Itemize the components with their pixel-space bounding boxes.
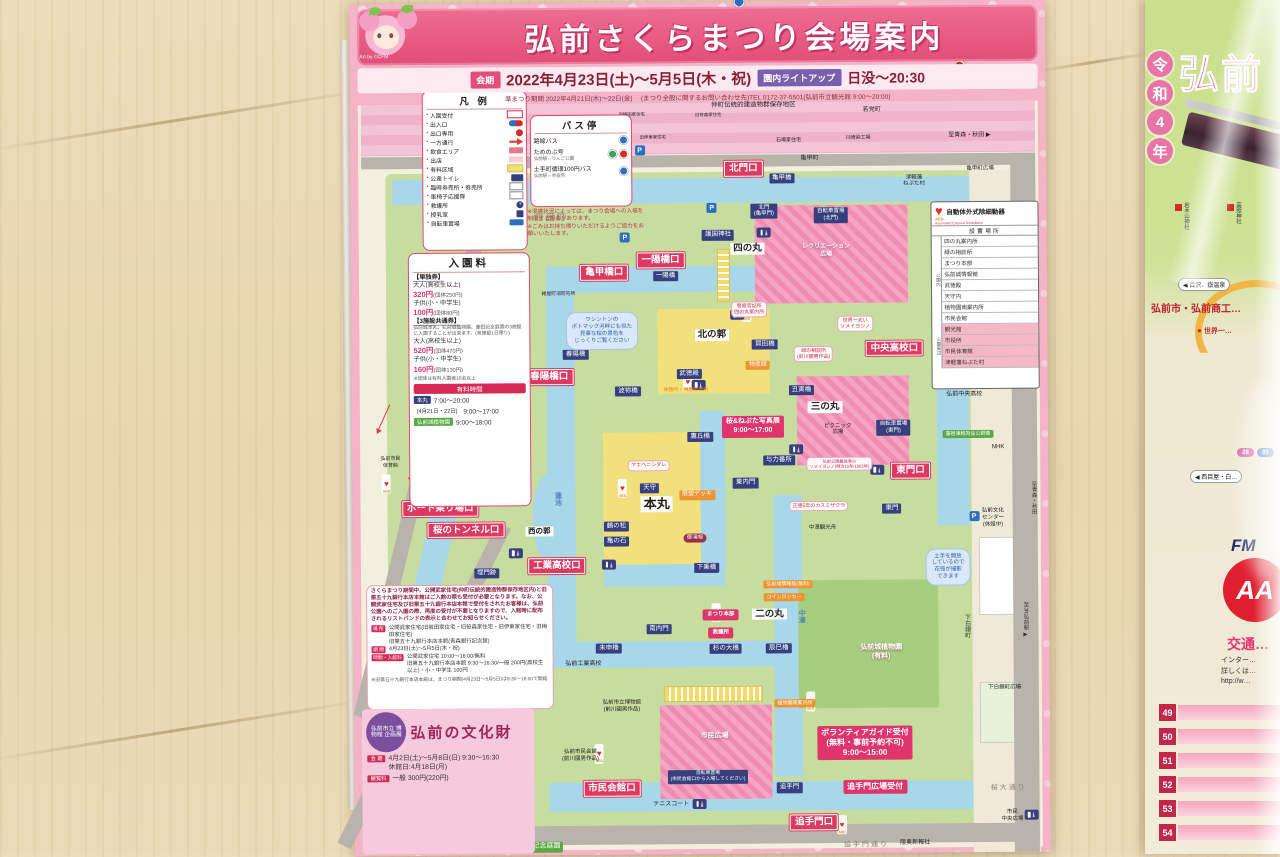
map-label: 西の郭 — [525, 527, 554, 537]
food-icon — [509, 148, 523, 154]
map-label: 紺屋町消防屯所 — [542, 292, 576, 298]
bicycle-icon — [510, 220, 524, 226]
paid-area-kitanokuruwa — [657, 308, 769, 394]
map-label: ボランティアガイド受付 (無料・事前予約不可) 9:00〜15:00 — [817, 726, 913, 761]
route-number-icon: 85 — [1257, 448, 1274, 457]
aed-icon: ♥AED — [382, 474, 392, 494]
toilet-icon — [602, 560, 616, 570]
map-label: 中濠観光舟 — [809, 525, 837, 532]
map-label: 旧笹森家住宅 — [695, 112, 721, 118]
map-label: 世界一太い ソメイヨシノ — [837, 315, 873, 332]
map-label: 追手門 — [777, 783, 803, 793]
timetable-row: 54 — [1159, 822, 1280, 843]
red-circle-logo: AA — [1223, 558, 1280, 622]
parking-icon: P — [969, 511, 979, 521]
timetable-row: 52 — [1159, 774, 1280, 795]
map-label: 桜&ねぷた写真展 9:00〜17:00 — [722, 416, 784, 438]
aed-location: 市民会館 — [943, 313, 1039, 325]
inout-icon — [509, 121, 523, 127]
map-label: 賀田橋 — [752, 339, 778, 349]
era-character: 年 — [1147, 138, 1173, 164]
legend-item: ▪車椅子応援隊 — [424, 191, 527, 201]
legend-item: ▪臨時券売所・券売所 — [424, 182, 527, 192]
map-label: まつり本部 — [703, 610, 739, 621]
info-lines: インター…詳しくは…http://w… — [1221, 656, 1256, 688]
aed-location: 武徳殿 — [942, 280, 1038, 292]
legend-item: ▪有料区域 — [424, 164, 527, 174]
fare-line: 大人(高校生以上)320円(団体250円) — [413, 281, 525, 300]
road — [494, 823, 1040, 846]
traffic-heading: 交通… — [1227, 634, 1269, 654]
shrine-label: 岩木山神社 — [1175, 202, 1190, 230]
aed-location: まつり本部 — [942, 258, 1038, 270]
map-label: 至青森・秋田 — [1030, 482, 1037, 515]
map-label: 自転車置場 (東門) — [877, 420, 911, 436]
map-label: 追手門広場受付 — [843, 780, 907, 794]
map-label: 追手門通り — [844, 841, 889, 850]
map-label: 藩祖津軽為信公銅像 — [942, 429, 993, 438]
map-label: 三の丸 — [808, 401, 843, 413]
stall-row — [717, 249, 730, 302]
map-label: 埋門跡 — [474, 568, 500, 578]
art-credit: Art by ©CFM — [359, 54, 388, 60]
ticket-icon — [510, 183, 524, 191]
direction-badge: ◀ 百沢、嶽温泉 — [1178, 278, 1230, 291]
map-label: 亀甲橋口 — [580, 265, 628, 281]
map-label: 追手門口 — [790, 814, 838, 830]
paid-hours-row: 本丸7:00〜20:00 — [410, 394, 530, 405]
map-label: 仲町伝統的建造物群保存地区 — [711, 101, 796, 110]
map-label: 下白銀町広場 — [988, 685, 1021, 692]
desk-board-seam — [1035, 51, 1154, 73]
admission-fee-box: 入園料 【単独券】 大人(高校生以上)320円(団体250円)子供(小・中学生)… — [408, 252, 531, 507]
timetable-rows: 495051525354 — [1159, 702, 1280, 846]
shrine-label: 高照神社 — [1227, 202, 1242, 224]
bus-stop-marker-icon — [619, 135, 628, 144]
aed-icon: ♥AED — [618, 478, 628, 498]
map-label: 津軽藩 ねぷた村 — [903, 174, 925, 188]
map-label: 亀甲町 — [800, 155, 818, 163]
map-label: 一陽橋口 — [636, 252, 684, 268]
map-label: 川崎染工場 — [846, 135, 871, 141]
aid-icon: + — [517, 201, 524, 208]
map-label: 中濠 — [796, 609, 805, 623]
paid-icon — [508, 165, 524, 173]
map-label: 天守 — [640, 483, 659, 493]
aed-location: 市役所 — [943, 335, 1039, 347]
aed-location: 緑の相談所 — [942, 247, 1038, 259]
group-note: ※団体は有料入園者10名以上 — [410, 374, 530, 382]
map-label: 市民広場 — [701, 733, 729, 742]
bus-stop-box: バス停 路線バスためのぶ号弘前駅⇔りんご公園土手町循環100円バス弘前駅⇔市役所 — [529, 114, 632, 207]
era-character: 令 — [1147, 51, 1173, 77]
single-ticket-heading: 【単独券】 — [413, 274, 444, 282]
map-label: 東門 — [882, 503, 901, 513]
map-label: 亀甲町広場 — [966, 165, 994, 172]
map-label: 至JR弘前駅 ▶ — [1021, 602, 1028, 638]
map-label: 四の丸 — [730, 243, 765, 255]
aed-location: 市民体育館 — [943, 346, 1039, 358]
bus-stop-marker-icon — [619, 166, 628, 175]
fare-line: 子供(小・中学生)100円(団体80円) — [413, 299, 525, 318]
notice-paragraph: さくらまつり期間中、公開武家住宅(仲町伝統的建造物群保存地区内)と旧第五十九銀行… — [367, 585, 552, 624]
map-label: 自転車置場 (北門) — [814, 207, 848, 223]
publisher-text: 弘前市・弘前商工… — [1151, 300, 1280, 315]
map-label: 休憩所・物産販売所 — [663, 386, 708, 393]
aed-location: 天守内 — [943, 291, 1039, 303]
map-label: 亀甲橋 — [769, 173, 795, 183]
bus-box-title: バス停 — [534, 117, 626, 134]
map-label: 下乗橋 — [694, 563, 720, 573]
map-label: 鶴の松 — [604, 521, 630, 531]
aed-location: 観光館 — [943, 324, 1039, 336]
map-label: 弘前公園最長寿の ソメイヨシノ(明治15年/1882年) — [806, 456, 872, 471]
map-label: 土手を開放 しているので 花筏が撮影 できます — [926, 548, 971, 586]
info-row: 観覧料一般 300円(220円) — [363, 774, 534, 784]
nursing-icon — [517, 210, 524, 217]
lightup-chip: 園内ライトアップ — [757, 69, 841, 87]
map-label: 弘前市立博物館 (前川國男作品) — [603, 699, 642, 713]
map-label: 辰巳櫓 — [766, 643, 792, 653]
map-label: 本丸 — [641, 496, 673, 512]
map-label: 護国神社 — [702, 230, 734, 240]
aed-around-list: 公園周辺 観光館市役所市民体育館津軽藩ねぷた村 — [943, 324, 1039, 369]
map-label: 丑寅櫓 — [789, 385, 815, 395]
timetable-row: 49 — [1159, 702, 1280, 723]
map-label: 弘前中央高校 — [946, 392, 982, 400]
map-label: 植物園南案内所 — [775, 699, 816, 708]
map-label: 弘前市民会館 (前川國男作品) — [562, 749, 599, 763]
page-title: 弘前さくらまつり会場案内 — [431, 10, 1037, 59]
timetable-row: 53 — [1159, 798, 1280, 819]
legend-item: ▪自転車置場 — [424, 218, 527, 228]
desk-board-seam — [0, 697, 375, 763]
timetable-row: 51 — [1159, 750, 1280, 771]
reiwa4-band: 令和4年 — [1147, 48, 1177, 167]
reception-icon — [507, 111, 523, 119]
toilet-icon — [757, 227, 771, 237]
era-character: 4 — [1147, 109, 1173, 135]
aed-icon: ♥AED — [837, 815, 847, 835]
period-text: 2022年4月23日(土)〜5月5日(木・祝) — [506, 68, 751, 91]
world-no1-label: 世界一… — [1197, 326, 1232, 336]
lotus-pond-shape — [532, 472, 570, 566]
admission-title: 入園料 — [413, 255, 525, 273]
map-label: NHK — [992, 444, 1005, 452]
map-label: 春陽橋 — [563, 350, 589, 360]
toilet-icon — [1024, 809, 1038, 819]
map-label: 与力番所 — [763, 455, 795, 465]
paid-hours-row: 弘前城植物園9:00〜18:00 — [410, 416, 530, 427]
map-label: 中央高校口 — [866, 340, 924, 356]
map-label: 二の丸 — [752, 608, 787, 620]
legend-box: 凡 例 ▪入園受付▪出入口▪出口専用▪一方通行▪飲食エリア▪出店▪有料区域▪公衆… — [422, 90, 528, 251]
map-label: 桜大通り — [991, 784, 1027, 793]
map-label: 物産館 — [746, 361, 770, 371]
map-label: 旧伊東家住宅 — [640, 135, 666, 141]
map-label: 未申櫓 — [596, 643, 622, 653]
map-label: 弘前城情報館(無料) — [763, 580, 812, 589]
info-row: 場 所公開武家住宅(旧岩田家住宅・旧笹森家住宅・旧伊東家住宅・旧梅田家住宅) 旧… — [367, 624, 552, 646]
map-label: コインロッカー — [763, 593, 804, 602]
map-label: 石場家住宅 — [776, 137, 801, 143]
aed-location: 津軽藩ねぷた村 — [943, 357, 1039, 369]
stall-row — [664, 686, 764, 702]
exit-icon — [516, 129, 523, 136]
fm-logo: FM — [1231, 536, 1256, 556]
map-label: 杉の大橋 — [710, 643, 742, 653]
map-label: 北門 (亀甲門) — [751, 203, 777, 219]
map-label: 北門口 — [724, 161, 763, 177]
aed-title: 自動体外式除細動器 — [946, 209, 1005, 217]
map-label: 御滝桜 — [684, 533, 707, 542]
map-label: 工業高校口 — [528, 558, 586, 574]
map-label: 弘前市民 体育館 — [380, 456, 400, 469]
map-label: テニスコート — [653, 802, 689, 810]
info-row: 時間・入館料公開武家住宅 10:00〜16:00/無料 旧第五十九銀行本店本館 … — [367, 653, 552, 675]
map-label: 弘前文化 センター (休館中) — [982, 508, 1004, 529]
desk-board-seam — [0, 87, 375, 153]
map-label: 波祢橋 — [615, 387, 641, 397]
toilet-icon — [512, 174, 524, 181]
map-label: ヤエベニシダレ — [628, 461, 669, 472]
parking-icon: P — [635, 146, 645, 156]
map-label: 南内門 — [646, 624, 672, 634]
map-label: 弘前工業高校 — [565, 661, 601, 669]
era-character: 和 — [1147, 80, 1173, 106]
route-number-badges: 2885 — [1237, 448, 1274, 457]
second-brochure: 令和4年 弘前 弘前市・弘前商工… 岩木山神社高照神社 2885 ◀ 百沢、嶽温… — [1145, 0, 1280, 854]
map-label: 桜のトンネル口 — [428, 522, 504, 538]
map-label: 下白銀町 — [962, 614, 970, 638]
timetable-row: 50 — [1159, 726, 1280, 747]
fare-line: 大人(高校生以上)520円(団体470円) — [413, 337, 525, 356]
toilet-icon — [693, 799, 707, 809]
festival-map-brochure: 弘前さくらまつり会場案内 Art by ©CFM 会期 2022年4月23日(土… — [349, 0, 1051, 856]
second-brochure-title-fragment: 弘前 — [1179, 42, 1263, 100]
legend-item: ▪出口専用 — [423, 128, 526, 138]
aed-location: 植物園南案内所 — [943, 302, 1039, 314]
wheel-icon — [510, 192, 524, 200]
museum-exhibit-box: 弘前市立 博物館 企画展 弘前の文化財 会 期4月2日(土)〜5月8日(日) 9… — [362, 709, 534, 855]
map-label: 東内門 — [733, 478, 759, 488]
info-row: 会 期4月2日(土)〜5月8日(日) 9:30〜16:30 休館日:4月18日(… — [363, 755, 534, 774]
parking-icon: P — [707, 203, 717, 213]
aed-location-box: ♥AED 自動体外式除細動器 Automated External Defibr… — [931, 201, 1040, 389]
aed-location: 四の丸案内所 — [942, 236, 1038, 248]
map-label: 亀の石 — [604, 537, 630, 547]
festival-dates: 会期 2022年4月23日(土)〜5月5日(木・祝) 園内ライトアップ 日没〜2… — [357, 64, 1037, 94]
map-label: 正徳5年のカスミザクラ — [789, 501, 848, 512]
aed-in-park-list: 公園内 四の丸案内所緑の相談所まつり本部弘前城情報館武徳殿天守内植物園南案内所市… — [942, 236, 1038, 325]
direction-badge: ◀ 西目屋・白… — [1190, 470, 1242, 483]
fare-line: 子供(小・中学生)160円(団体130円) — [414, 356, 526, 375]
pen-on-brochure — [1181, 112, 1280, 179]
stall-icon — [509, 157, 523, 163]
map-notes: ※混雑状況によっては、まつり会場への入場を制限する場合があります。※ごみはお持ち… — [527, 209, 646, 239]
map-label: 若党町 — [863, 107, 881, 115]
map-label: 鷹丘橋 — [687, 431, 713, 441]
citizens-plaza-zone — [660, 704, 772, 798]
map-label: 蓮池 — [553, 492, 562, 506]
info-row: 期 間4月23日(土)〜5月5日(木・祝) — [367, 645, 552, 653]
map-label: 北の郭 — [695, 329, 730, 341]
lightup-time: 日没〜20:30 — [847, 67, 925, 88]
map-label: 至青森・秋田 ▶ — [948, 133, 990, 141]
oneway-icon — [509, 138, 523, 145]
map-label: ピクニック 広場 — [824, 423, 852, 437]
bus-item: ためのぶ号弘前駅⇔りんご公園 — [531, 145, 631, 163]
title-banner: 弘前さくらまつり会場案内 — [357, 5, 1037, 66]
aed-location: 弘前城情報館 — [942, 269, 1038, 281]
bus-item: 路線バス — [531, 134, 631, 146]
legend-item: ▪入園受付 — [423, 110, 526, 120]
paid-hours-heading: 有料時間 — [414, 383, 526, 394]
map-label: レクリエーション 広場 — [802, 244, 850, 259]
map-label: 一陽橋 — [653, 271, 679, 281]
museum-badge: 弘前市立 博物館 企画展 — [366, 713, 406, 753]
aed-heart-icon: ♥AED — [935, 204, 944, 221]
route-number-icon: 28 — [1237, 448, 1254, 457]
map-label: ワシントンの ポトマック河畔にも似た 見事な桜の景色を じっくりご覧ください — [565, 312, 638, 350]
notice-footnote: ※旧第五十九銀行本店本館は、まつり期間(4月23日〜5月5日)は9:30〜18:… — [367, 675, 552, 683]
bus-stop-marker-icon — [619, 149, 628, 158]
samurai-house-notice-box: さくらまつり期間中、公開武家住宅(仲町伝統的建造物群保存地区内)と旧第五十九銀行… — [366, 584, 554, 710]
exhibit-title: 弘前の文化財 — [410, 721, 512, 743]
map-label: 東門口 — [891, 463, 930, 479]
map-label: 弘前城植物園 (有料) — [860, 644, 902, 662]
map-label: 自転車置場 (市民会館口から入場してください) — [668, 770, 749, 785]
combo-description: 弘前城本丸、弘前城植物園、藤田記念庭園の3施設に入園することが出来ます。(各施設… — [409, 326, 529, 339]
paid-hours-row: [4月21日・22日]9:00〜17:00 — [410, 405, 530, 416]
bus-item: 土手町循環100円バス弘前駅⇔市役所 — [531, 162, 631, 180]
legend-item: ▪授乳室 — [424, 209, 527, 219]
toilet-icon — [789, 444, 803, 454]
map-label: 市民 中央広場 — [1001, 809, 1023, 823]
period-chip: 会期 — [470, 71, 500, 88]
toilet-icon — [509, 548, 523, 558]
map-label: 市民会館口 — [583, 781, 641, 797]
bus-stop-marker-icon — [608, 149, 617, 158]
map-label: 緑の相談所 (前川國男作品) — [794, 346, 833, 363]
map-label: 警察官詰所 四の丸案内所 — [731, 301, 767, 318]
map-label: 武徳殿 — [676, 369, 702, 379]
map-label: 春陽橋口 — [525, 369, 573, 385]
map-label: 展望デッキ — [679, 490, 715, 500]
map-label: 陸奥新報社 — [900, 840, 930, 848]
map-label: 救護所 — [709, 628, 734, 639]
